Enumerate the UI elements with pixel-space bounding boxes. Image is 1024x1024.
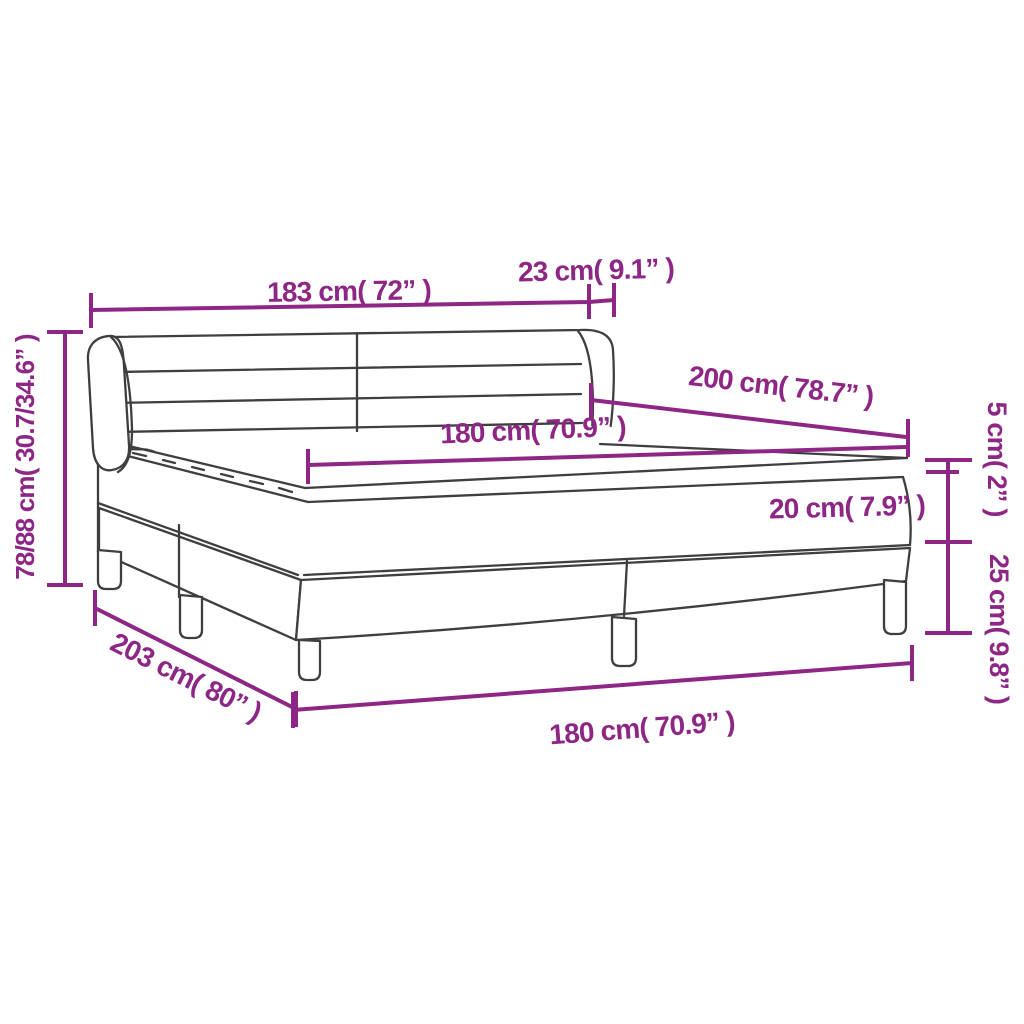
dim-headboard-width-label: 183 cm( 72” ) bbox=[267, 274, 431, 308]
dimension-labels: 183 cm( 72” ) 23 cm( 9.1” ) 78/88 cm( 30… bbox=[10, 252, 1014, 750]
dim-height-stack-line bbox=[925, 460, 972, 633]
diagram-canvas: 183 cm( 72” ) 23 cm( 9.1” ) 78/88 cm( 30… bbox=[0, 0, 1024, 1024]
bed-leg-back-left bbox=[98, 550, 121, 589]
dim-total-length-label: 203 cm( 80” ) bbox=[106, 627, 267, 728]
dim-total-height-label: 78/88 cm( 30.7/34.6” ) bbox=[10, 334, 40, 580]
bed-leg-mid-left bbox=[180, 595, 202, 638]
base-front-face bbox=[296, 548, 910, 640]
dim-bed-length-label: 200 cm( 78.7” ) bbox=[687, 360, 875, 412]
bed-leg-front-mid bbox=[612, 617, 636, 666]
dim-headboard-depth-line bbox=[589, 283, 614, 317]
bed-dimension-diagram: 183 cm( 72” ) 23 cm( 9.1” ) 78/88 cm( 30… bbox=[0, 0, 1024, 1024]
bed-leg-front-right bbox=[884, 580, 906, 634]
bed-leg-front-corner bbox=[299, 640, 320, 680]
dim-base-height-label: 25 cm( 9.8” ) bbox=[984, 554, 1014, 704]
dim-topper-height-label: 5 cm( 2” ) bbox=[982, 401, 1012, 516]
dim-mattress-height-label: 20 cm( 7.9” ) bbox=[769, 489, 926, 524]
dim-total-height-line bbox=[47, 332, 83, 585]
dim-headboard-depth-label: 23 cm( 9.1” ) bbox=[518, 252, 675, 287]
dim-base-width-label: 180 cm( 70.9” ) bbox=[548, 706, 735, 751]
